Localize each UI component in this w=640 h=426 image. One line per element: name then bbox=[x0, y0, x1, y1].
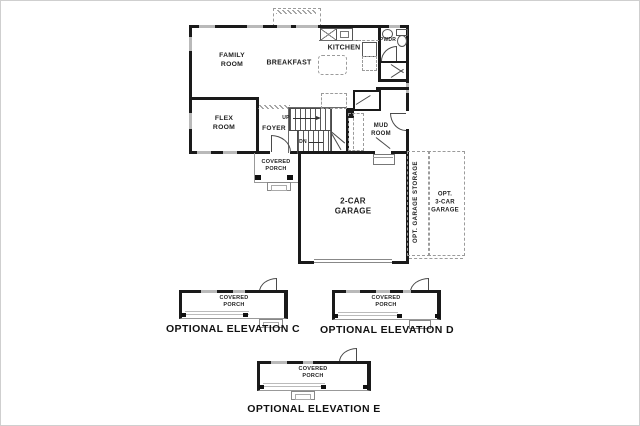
porch-edge-line bbox=[338, 315, 398, 316]
kitchen-label: KITCHEN bbox=[328, 43, 361, 52]
mud-garage-door bbox=[376, 137, 391, 149]
opt-3car-garage-label: OPT. 3-CAR GARAGE bbox=[431, 191, 459, 214]
flex-room-label: FLEX ROOM bbox=[213, 115, 235, 133]
garage-door-line bbox=[314, 262, 392, 263]
garage-stoop-line bbox=[373, 157, 393, 158]
garage-label: 2-CAR GARAGE bbox=[335, 197, 372, 218]
porch-edge-line bbox=[338, 312, 398, 313]
breakfast-label: BREAKFAST bbox=[266, 58, 311, 67]
pwdr-door-swing bbox=[381, 46, 397, 61]
window bbox=[376, 290, 390, 293]
window bbox=[201, 290, 217, 293]
dn-arrow-line bbox=[309, 142, 323, 143]
counter-dashed bbox=[353, 40, 379, 41]
elevation-c-porch-label: COVERED PORCH bbox=[220, 295, 249, 309]
opt-rail bbox=[321, 93, 347, 109]
family-room-label: FAMILY ROOM bbox=[219, 52, 245, 70]
garage-entry-door-swing bbox=[390, 113, 406, 131]
window bbox=[303, 361, 313, 364]
window bbox=[199, 25, 215, 28]
porch-edge-line bbox=[263, 386, 325, 387]
foyer-label: FOYER bbox=[262, 125, 286, 133]
window bbox=[346, 290, 360, 293]
pantry-shelf-line bbox=[353, 113, 354, 149]
porch-post bbox=[333, 314, 338, 318]
elevation-d-porch-label: COVERED PORCH bbox=[372, 295, 401, 309]
window bbox=[403, 290, 411, 293]
window bbox=[233, 290, 245, 293]
garage-door-line bbox=[314, 259, 392, 260]
opening-hatch bbox=[258, 105, 290, 109]
opt-garage-storage-label: OPT. GARAGE STORAGE bbox=[413, 161, 421, 243]
patio-hatch bbox=[276, 10, 316, 14]
porch-post bbox=[181, 313, 186, 317]
porch-post bbox=[255, 175, 261, 180]
up-arrow-head bbox=[316, 116, 321, 120]
opt-garage-door-line bbox=[409, 258, 463, 259]
wall-foyer-front-left bbox=[259, 151, 270, 154]
wall-garage-bottom-right bbox=[392, 261, 409, 264]
porch-steps-inner bbox=[295, 394, 311, 400]
elevation-e-porch-label: COVERED PORCH bbox=[299, 366, 328, 380]
wall-family-flex bbox=[189, 97, 259, 100]
wall-garage-top-left bbox=[298, 151, 375, 154]
floor-plan-sheet: UP DN FAMILY ROOM BREAKFAST bbox=[0, 0, 640, 426]
porch-post bbox=[259, 385, 264, 389]
porch-post bbox=[363, 385, 368, 389]
pwdr-label: PWDR bbox=[380, 37, 396, 44]
toilet-bowl bbox=[397, 35, 407, 47]
wall-right-mid bbox=[406, 93, 409, 111]
kitchen-island bbox=[318, 55, 347, 75]
wall-garage-bottom-left bbox=[298, 261, 314, 264]
window bbox=[197, 151, 211, 154]
refrigerator bbox=[362, 42, 377, 57]
porch-edge-line bbox=[185, 311, 249, 312]
window bbox=[277, 25, 291, 28]
window bbox=[389, 25, 400, 28]
porch-post bbox=[435, 314, 440, 318]
closet bbox=[353, 90, 381, 111]
elevation-e-title: OPTIONAL ELEVATION E bbox=[247, 403, 380, 415]
window bbox=[247, 25, 263, 28]
garage-stoop bbox=[373, 154, 395, 165]
mud-room-label: MUD ROOM bbox=[371, 123, 391, 139]
porch-post bbox=[243, 313, 248, 317]
elevation-d-title: OPTIONAL ELEVATION D bbox=[320, 324, 454, 336]
wall-garage-left bbox=[298, 151, 301, 264]
stairs-up-flight bbox=[289, 108, 332, 131]
wall-pwdr-left bbox=[378, 25, 381, 81]
window bbox=[223, 151, 237, 154]
pantry-shelves bbox=[348, 113, 364, 151]
elevation-e-door-swing bbox=[339, 348, 357, 362]
coat-closet-door bbox=[391, 69, 404, 78]
porch-edge-line bbox=[185, 314, 249, 315]
covered-porch-label: COVERED PORCH bbox=[262, 159, 291, 173]
porch-edge-line bbox=[263, 383, 325, 384]
porch-post bbox=[287, 175, 293, 180]
wall-pwdr-bottom bbox=[380, 61, 409, 63]
porch-post bbox=[397, 314, 402, 318]
porch-steps-inner bbox=[271, 185, 287, 191]
window bbox=[189, 113, 192, 129]
wall-hall-bottom bbox=[378, 79, 409, 82]
porch-post bbox=[321, 385, 326, 389]
kitchen-stove-inner bbox=[340, 31, 349, 38]
up-arrow-line bbox=[293, 118, 317, 119]
stairs-up-label: UP bbox=[282, 115, 289, 122]
opt-cabinet bbox=[362, 56, 377, 71]
sliding-door bbox=[296, 25, 318, 28]
window bbox=[271, 361, 287, 364]
stairs-dn-label: DN bbox=[299, 139, 307, 146]
elevation-c-title: OPTIONAL ELEVATION C bbox=[166, 323, 300, 335]
window bbox=[189, 37, 192, 51]
